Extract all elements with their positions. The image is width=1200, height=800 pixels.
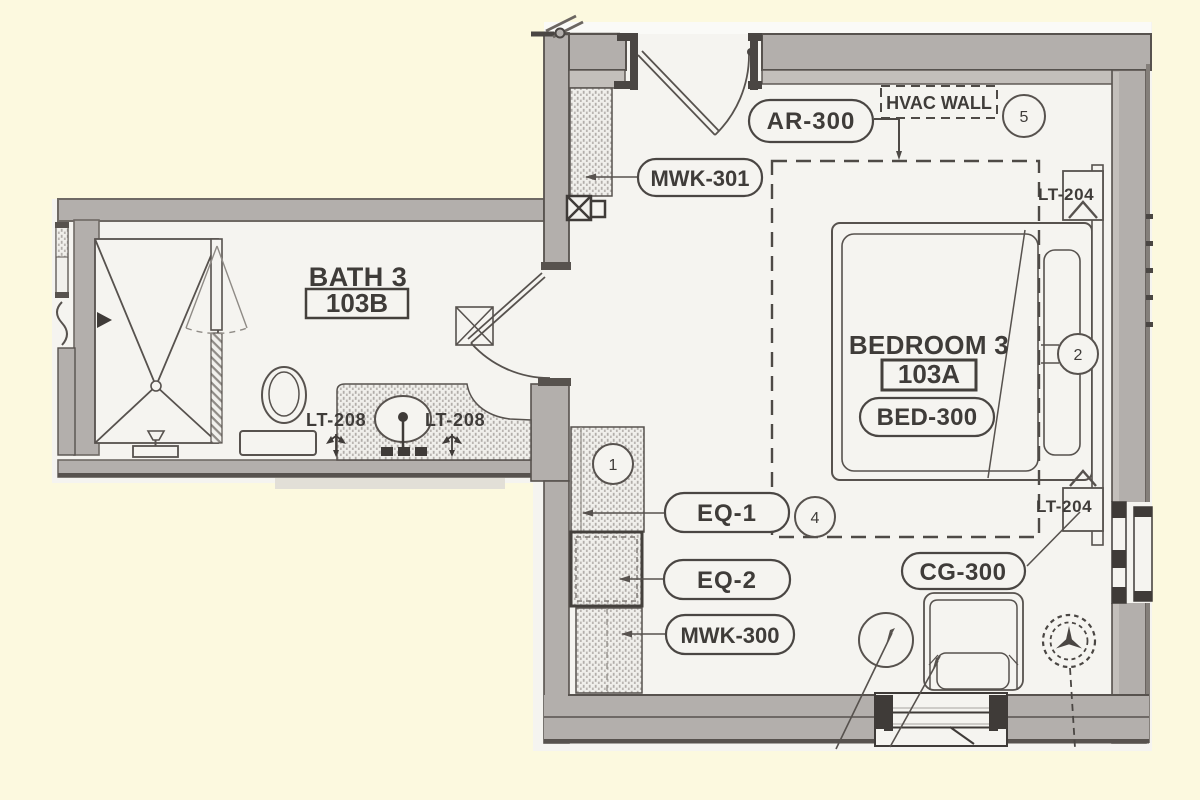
svg-text:4: 4: [811, 510, 820, 527]
svg-text:EQ-1: EQ-1: [697, 500, 757, 527]
svg-text:MWK-300: MWK-300: [680, 623, 779, 648]
svg-text:103A: 103A: [898, 359, 960, 389]
svg-text:LT-204: LT-204: [1038, 185, 1094, 204]
svg-text:BED-300: BED-300: [877, 404, 978, 431]
svg-text:5: 5: [1020, 109, 1029, 126]
svg-text:2: 2: [1074, 347, 1083, 364]
svg-text:CG-300: CG-300: [919, 559, 1006, 586]
svg-text:MWK-301: MWK-301: [650, 166, 749, 191]
svg-text:EQ-2: EQ-2: [697, 567, 757, 594]
svg-text:AR-300: AR-300: [767, 108, 856, 135]
svg-text:LT-208: LT-208: [306, 410, 367, 430]
svg-text:1: 1: [609, 457, 618, 474]
svg-text:LT-208: LT-208: [425, 410, 486, 430]
svg-text:103B: 103B: [326, 288, 388, 318]
svg-text:LT-204: LT-204: [1036, 497, 1092, 516]
svg-text:HVAC WALL: HVAC WALL: [886, 93, 992, 113]
svg-text:BEDROOM 3: BEDROOM 3: [849, 330, 1009, 360]
